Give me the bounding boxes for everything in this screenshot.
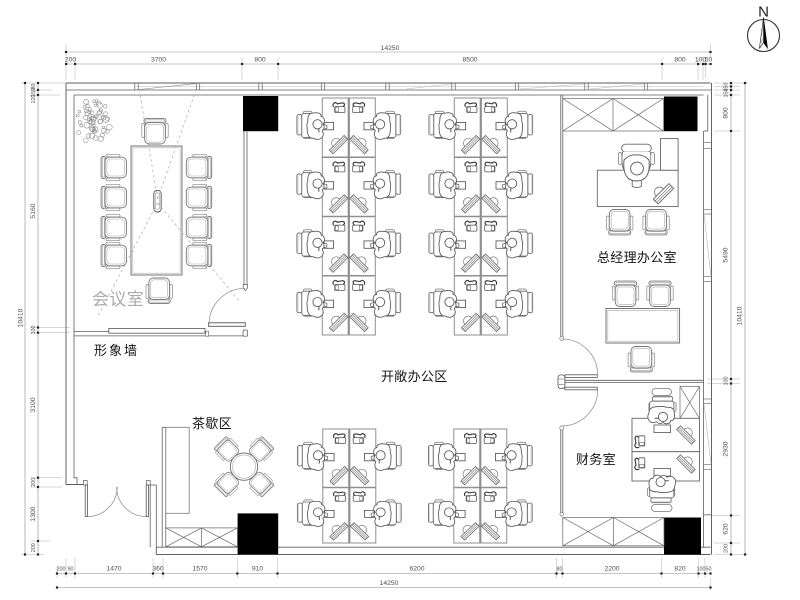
- svg-text:200: 200: [65, 57, 77, 64]
- svg-text:3100: 3100: [30, 397, 37, 412]
- svg-text:800: 800: [723, 107, 730, 119]
- svg-text:2200: 2200: [604, 566, 619, 573]
- svg-text:14250: 14250: [380, 580, 399, 587]
- svg-text:200: 200: [724, 544, 730, 553]
- svg-text:总经理办公室: 总经理办公室: [597, 250, 677, 265]
- svg-text:90: 90: [68, 567, 74, 573]
- svg-text:会议室: 会议室: [92, 290, 144, 309]
- svg-text:50: 50: [705, 57, 713, 64]
- svg-text:2930: 2930: [723, 441, 730, 456]
- svg-text:10410: 10410: [18, 308, 25, 327]
- svg-text:360: 360: [152, 566, 164, 573]
- svg-text:财务室: 财务室: [576, 452, 616, 467]
- svg-text:800: 800: [674, 57, 686, 64]
- svg-text:800: 800: [254, 57, 266, 64]
- svg-text:1470: 1470: [106, 566, 121, 573]
- svg-text:形象墙: 形象墙: [94, 343, 139, 358]
- svg-text:6200: 6200: [409, 566, 424, 573]
- svg-text:8500: 8500: [462, 57, 477, 64]
- svg-text:100: 100: [697, 567, 706, 573]
- svg-text:200: 200: [57, 567, 66, 573]
- svg-text:910: 910: [252, 566, 264, 573]
- svg-text:120: 120: [31, 95, 37, 104]
- svg-text:150: 150: [724, 89, 730, 98]
- svg-text:1300: 1300: [30, 506, 37, 521]
- svg-text:10410: 10410: [737, 306, 744, 325]
- svg-text:200: 200: [31, 543, 37, 552]
- svg-text:茶歇区: 茶歇区: [192, 416, 232, 431]
- svg-text:100: 100: [31, 326, 37, 335]
- svg-text:14250: 14250: [381, 45, 400, 52]
- svg-text:50: 50: [706, 567, 712, 573]
- svg-text:820: 820: [674, 566, 686, 573]
- svg-text:200: 200: [31, 478, 37, 487]
- svg-text:80: 80: [557, 567, 563, 573]
- svg-text:5160: 5160: [30, 203, 37, 218]
- svg-text:620: 620: [723, 523, 730, 535]
- svg-text:100: 100: [724, 377, 730, 386]
- svg-text:5490: 5490: [723, 247, 730, 262]
- svg-text:开敞办公区: 开敞办公区: [381, 369, 448, 384]
- svg-text:1570: 1570: [192, 566, 207, 573]
- svg-text:3700: 3700: [151, 57, 166, 64]
